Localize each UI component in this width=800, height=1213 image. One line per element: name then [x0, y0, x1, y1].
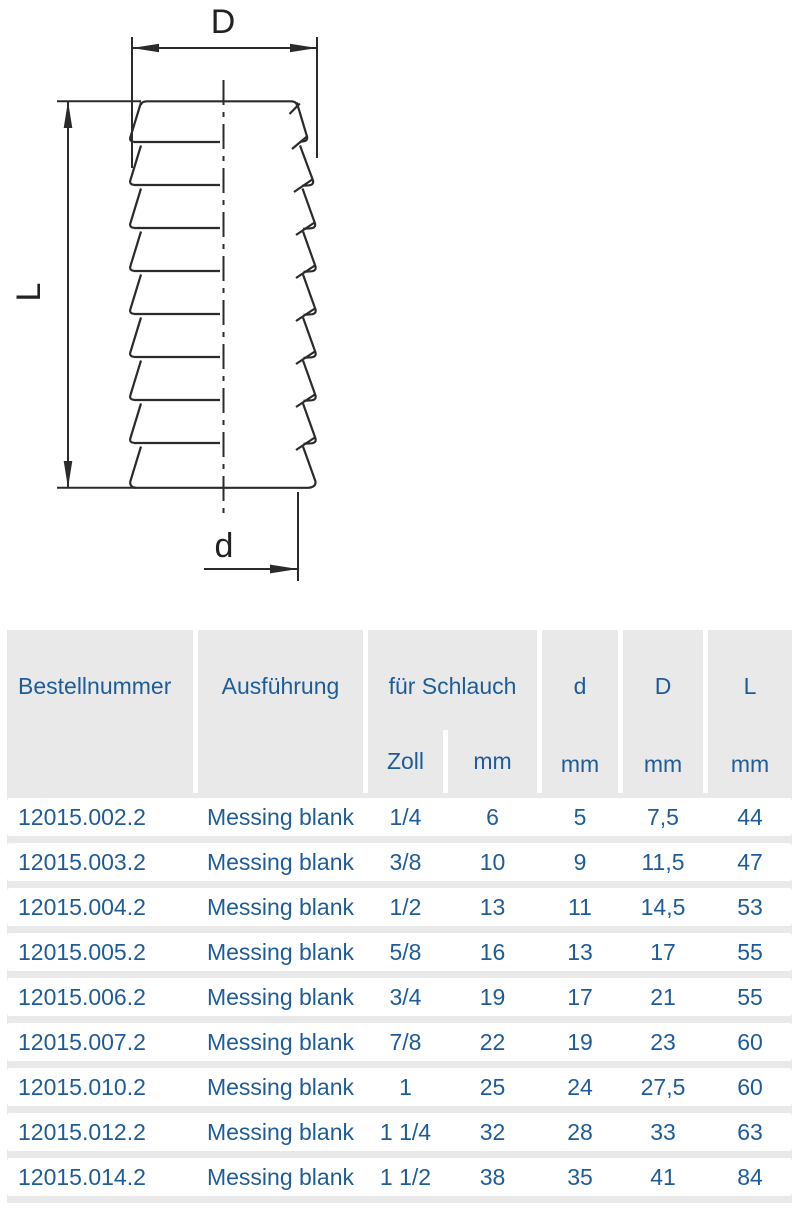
table-cell: 12015.006.2	[7, 978, 193, 1016]
table-cell: 41	[623, 1158, 703, 1196]
arrowhead-right	[290, 44, 317, 53]
table-cell: 1/2	[368, 888, 443, 926]
unit-label-zoll: Zoll	[368, 730, 443, 793]
table-cell: 55	[708, 978, 792, 1016]
table-cell: 55	[708, 933, 792, 971]
table-cell: 25	[448, 1068, 537, 1106]
table-cell: 12015.012.2	[7, 1113, 193, 1151]
table-cell: Messing blank	[198, 978, 363, 1016]
table-cell: 53	[708, 888, 792, 926]
table-cell: 22	[448, 1023, 537, 1061]
table-cell: 1/4	[368, 798, 443, 836]
table-cell: 21	[623, 978, 703, 1016]
table-cell: 16	[448, 933, 537, 971]
table-cell: 17	[623, 933, 703, 971]
spec-table: Bestellnummer Ausführung für Schlauch Zo…	[7, 630, 792, 1203]
sub-units-row: Zoll mm	[368, 730, 537, 793]
header-col-L: L mm	[708, 630, 792, 793]
table-cell: 14,5	[623, 888, 703, 926]
column-label: d	[542, 630, 618, 742]
column-label: D	[623, 630, 703, 742]
table-cell: 17	[542, 978, 618, 1016]
arrowhead-left	[132, 44, 159, 53]
table-cell: 12015.004.2	[7, 888, 193, 926]
dim-label-length: L	[10, 283, 48, 302]
table-cell: 13	[542, 933, 618, 971]
table-cell: Messing blank	[198, 933, 363, 971]
table-cell: 12015.005.2	[7, 933, 193, 971]
header-col-d: d mm	[542, 630, 618, 793]
table-cell: 5	[542, 798, 618, 836]
header-col-D: D mm	[623, 630, 703, 793]
column-label: L	[708, 630, 792, 742]
header-col-bestellnummer: Bestellnummer	[7, 630, 193, 793]
dimension-L	[57, 101, 141, 488]
table-row: 12015.005.2Messing blank5/816131755	[7, 933, 792, 971]
dim-label-outer-diameter: D	[211, 3, 236, 41]
datasheet-page: D L d Bestellnummer Ausführung fü	[0, 0, 800, 1213]
table-cell: 7/8	[368, 1023, 443, 1061]
table-cell: Messing blank	[198, 1023, 363, 1061]
table-cell: 12015.007.2	[7, 1023, 193, 1061]
table-row: 12015.012.2Messing blank1 1/432283363	[7, 1113, 792, 1151]
table-cell: 60	[708, 1068, 792, 1106]
table-cell: 11	[542, 888, 618, 926]
table-cell: 3/8	[368, 843, 443, 881]
table-cell: 32	[448, 1113, 537, 1151]
arrowhead-down	[64, 461, 73, 488]
table-cell: 5/8	[368, 933, 443, 971]
unit-label-mm: mm	[448, 730, 537, 793]
table-row: 12015.014.2Messing blank1 1/238354184	[7, 1158, 792, 1196]
table-cell: 27,5	[623, 1068, 703, 1106]
table-cell: 19	[448, 978, 537, 1016]
column-label: für Schlauch	[368, 630, 537, 742]
table-cell: 7,5	[623, 798, 703, 836]
table-row: 12015.006.2Messing blank3/419172155	[7, 978, 792, 1016]
table-cell: 28	[542, 1113, 618, 1151]
table-cell: 3/4	[368, 978, 443, 1016]
table-cell: 35	[542, 1158, 618, 1196]
header-col-fuer-schlauch: für Schlauch Zoll mm	[368, 630, 537, 793]
table-cell: Messing blank	[198, 798, 363, 836]
table-cell: Messing blank	[198, 888, 363, 926]
table-cell: 38	[448, 1158, 537, 1196]
dim-label-inner-diameter: d	[215, 527, 234, 565]
table-cell: 1 1/4	[368, 1113, 443, 1151]
table-cell: 6	[448, 798, 537, 836]
table-cell: 63	[708, 1113, 792, 1151]
table-cell: Messing blank	[198, 843, 363, 881]
table-header: Bestellnummer Ausführung für Schlauch Zo…	[7, 630, 792, 793]
table-cell: 60	[708, 1023, 792, 1061]
technical-drawing: D L d	[0, 0, 400, 600]
table-cell: 24	[542, 1068, 618, 1106]
table-row: 12015.002.2Messing blank1/4657,544	[7, 798, 792, 836]
table-cell: 12015.014.2	[7, 1158, 193, 1196]
table-cell: Messing blank	[198, 1113, 363, 1151]
table-row: 12015.010.2Messing blank1252427,560	[7, 1068, 792, 1106]
table-cell: 11,5	[623, 843, 703, 881]
table-cell: 1	[368, 1068, 443, 1106]
table-cell: 84	[708, 1158, 792, 1196]
table-cell: 10	[448, 843, 537, 881]
arrowhead-right-d	[270, 565, 298, 574]
header-col-ausfuehrung: Ausführung	[198, 630, 363, 793]
unit-label-mm: mm	[708, 736, 792, 793]
table-body: 12015.002.2Messing blank1/4657,54412015.…	[7, 793, 792, 1203]
unit-label-mm: mm	[623, 736, 703, 793]
table-cell: 12015.003.2	[7, 843, 193, 881]
table-cell: 1 1/2	[368, 1158, 443, 1196]
column-label: Bestellnummer	[7, 630, 193, 742]
unit-label-mm: mm	[542, 736, 618, 793]
table-row: 12015.003.2Messing blank3/810911,547	[7, 843, 792, 881]
table-cell: Messing blank	[198, 1158, 363, 1196]
table-row: 12015.004.2Messing blank1/2131114,553	[7, 888, 792, 926]
table-cell: 33	[623, 1113, 703, 1151]
table-row: 12015.007.2Messing blank7/822192360	[7, 1023, 792, 1061]
table-cell: 19	[542, 1023, 618, 1061]
arrowhead-up	[64, 101, 73, 128]
table-cell: Messing blank	[198, 1068, 363, 1106]
table-cell: 9	[542, 843, 618, 881]
table-cell: 12015.002.2	[7, 798, 193, 836]
table-cell: 23	[623, 1023, 703, 1061]
column-label: Ausführung	[198, 630, 363, 742]
table-cell: 44	[708, 798, 792, 836]
table-cell: 47	[708, 843, 792, 881]
table-cell: 13	[448, 888, 537, 926]
table-cell: 12015.010.2	[7, 1068, 193, 1106]
